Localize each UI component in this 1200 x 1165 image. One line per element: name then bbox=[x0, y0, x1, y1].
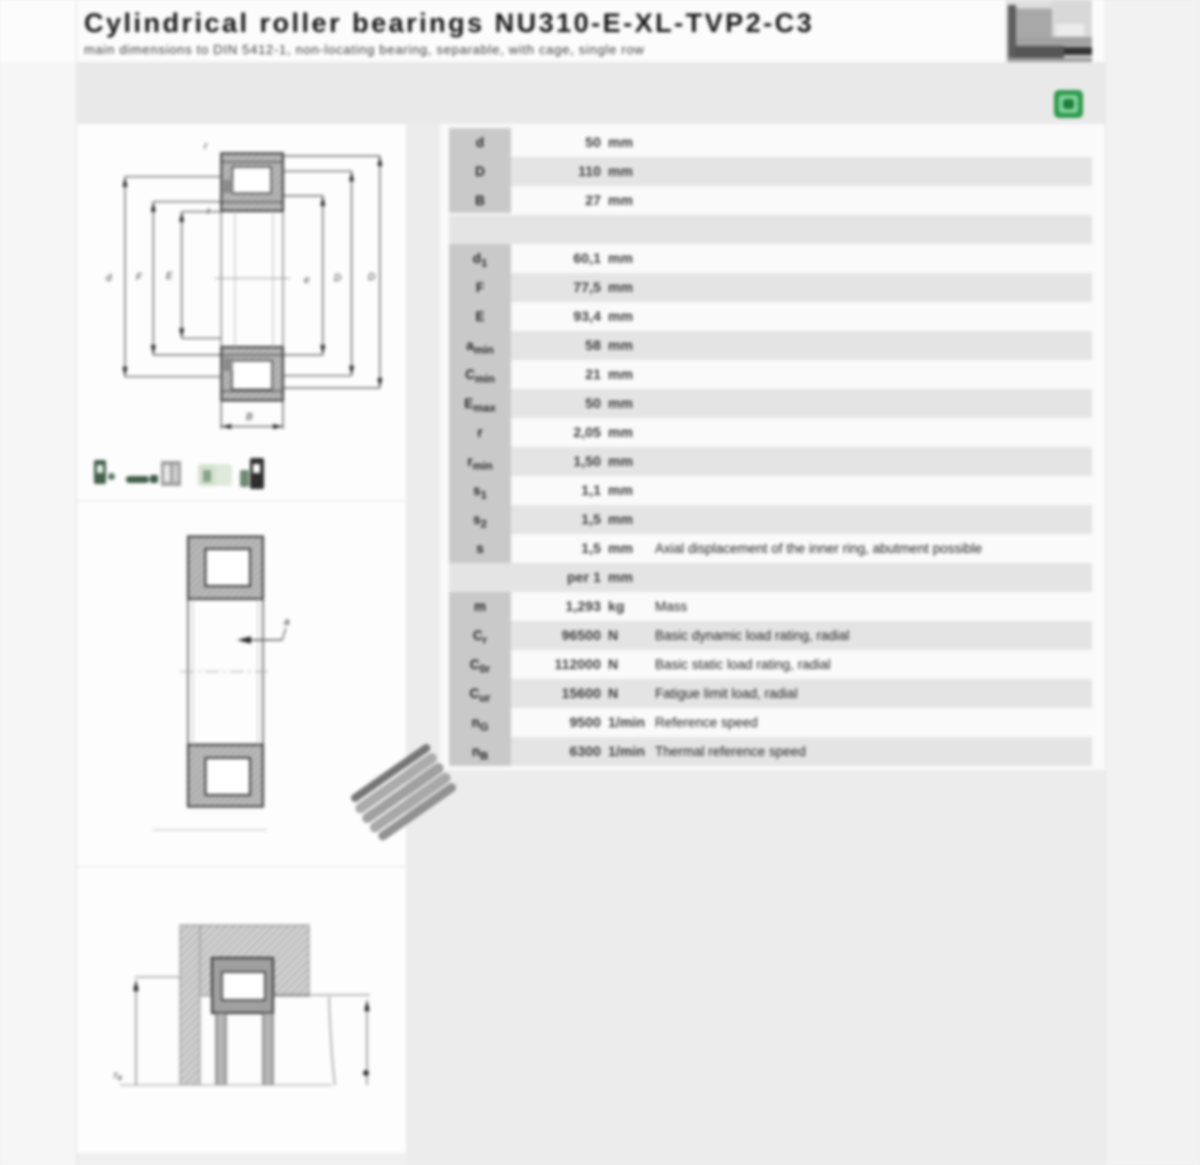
svg-text:ra: ra bbox=[114, 1070, 122, 1082]
svg-text:F: F bbox=[136, 272, 143, 283]
svg-text:B: B bbox=[246, 412, 253, 423]
svg-text:d: d bbox=[106, 273, 112, 284]
svg-text:r: r bbox=[204, 141, 208, 152]
svg-text:e: e bbox=[304, 275, 310, 286]
svg-text:D: D bbox=[368, 272, 375, 283]
svg-text:D: D bbox=[334, 273, 341, 284]
svg-text:E: E bbox=[166, 271, 173, 282]
svg-text:a: a bbox=[284, 617, 290, 628]
